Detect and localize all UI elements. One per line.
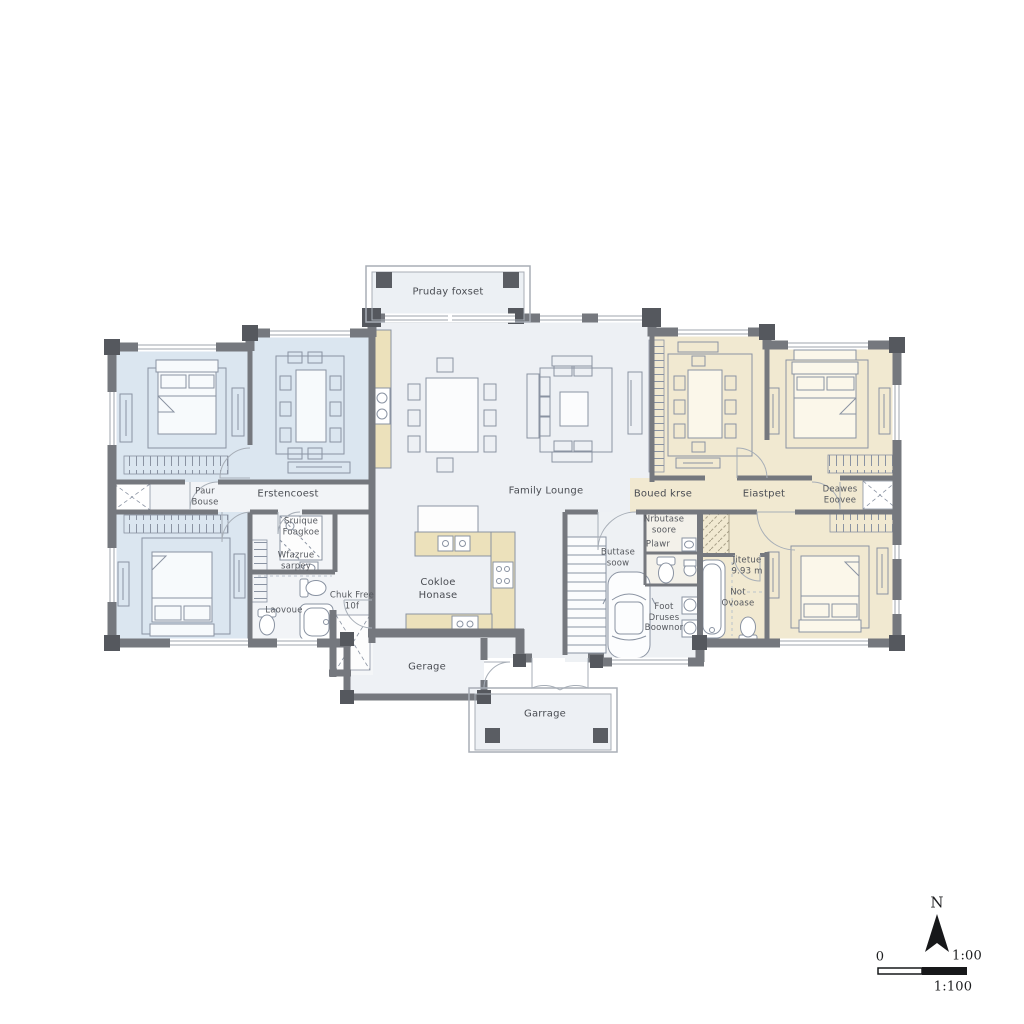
- floor-plan-page: Pruday foxset Paur Bouse Erstencoest Fam…: [0, 0, 1024, 1024]
- label-great-room: Family Lounge: [509, 485, 584, 498]
- label-porch-bottom: Garrage: [524, 708, 566, 721]
- label-bath-right: Not Ovoase: [722, 587, 755, 608]
- label-bath-right-dim: Jitetue 9.93 m: [731, 555, 762, 576]
- label-powder-room: Plawr: [646, 540, 670, 551]
- label-porch-top: Pruday foxset: [412, 286, 483, 299]
- label-closet-right: Deawes Eoovee: [823, 484, 858, 505]
- label-mudroom: Nrbutase soore: [644, 514, 684, 535]
- closet-x-right: [863, 481, 897, 509]
- label-hall-left: Erstencoest: [257, 488, 318, 501]
- scale-bar: [872, 962, 992, 982]
- label-bath-left: Laovoue: [265, 606, 302, 617]
- scale-ratio-bottom-label: 1:100: [934, 980, 972, 997]
- label-entry-left: Chuk Free 10f: [330, 590, 374, 611]
- label-shower-note: Wfazrue sarpey: [278, 550, 315, 571]
- floor-plan-drawing: [0, 0, 1024, 1024]
- label-hall-mid: Boued krse: [634, 488, 692, 501]
- label-closet-hall-left: Paur Bouse: [191, 486, 218, 507]
- closet-x-left: [114, 484, 150, 510]
- label-utility: Foot Druses Boownor: [645, 602, 684, 634]
- label-kitchen: Cokloe Honase: [419, 576, 458, 602]
- label-stair-hall: Buttase soow: [601, 547, 635, 568]
- label-shower-room: Sruique Foagkoe: [283, 516, 320, 537]
- label-garage-room: Gerage: [408, 661, 446, 674]
- label-hall-right: Eiastpet: [743, 488, 785, 501]
